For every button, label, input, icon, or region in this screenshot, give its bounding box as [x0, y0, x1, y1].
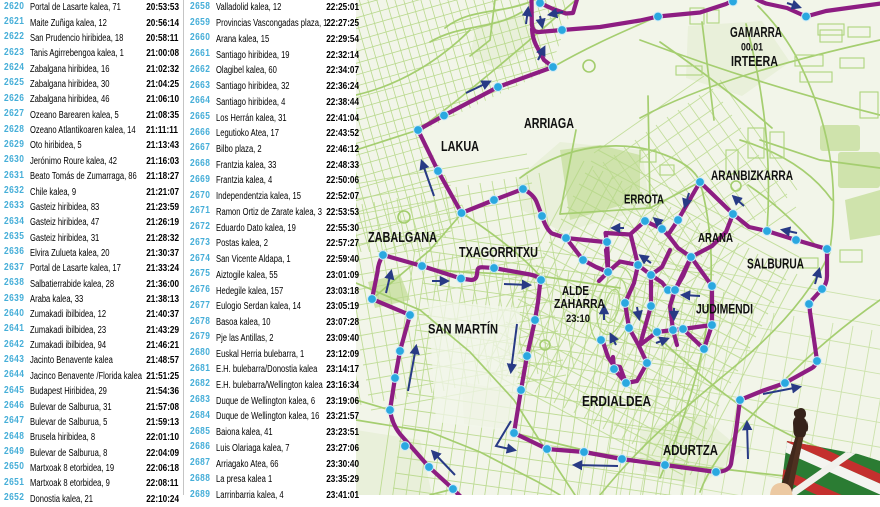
svg-text:ERDIALDEA: ERDIALDEA: [582, 394, 651, 410]
svg-text:IRTEERA: IRTEERA: [731, 54, 778, 70]
svg-text:GAMARRA: GAMARRA: [730, 25, 782, 41]
svg-text:SALBURUA: SALBURUA: [747, 257, 804, 273]
svg-text:ZABALGANA: ZABALGANA: [368, 230, 437, 246]
svg-text:23:10: 23:10: [566, 313, 590, 325]
svg-text:ZAHARRA: ZAHARRA: [554, 296, 605, 311]
svg-text:ERROTA: ERROTA: [624, 192, 664, 207]
svg-text:SAN MARTÍN: SAN MARTÍN: [428, 322, 498, 337]
svg-text:JUDIMENDI: JUDIMENDI: [696, 302, 753, 317]
svg-text:ARANBIZKARRA: ARANBIZKARRA: [711, 168, 793, 183]
svg-text:ADURTZA: ADURTZA: [663, 443, 718, 459]
svg-text:00.01: 00.01: [741, 42, 763, 54]
svg-text:ARRIAGA: ARRIAGA: [524, 116, 574, 132]
svg-text:LAKUA: LAKUA: [441, 139, 479, 155]
svg-text:ARANA: ARANA: [698, 230, 733, 245]
svg-text:TXAGORRITXU: TXAGORRITXU: [459, 245, 538, 261]
